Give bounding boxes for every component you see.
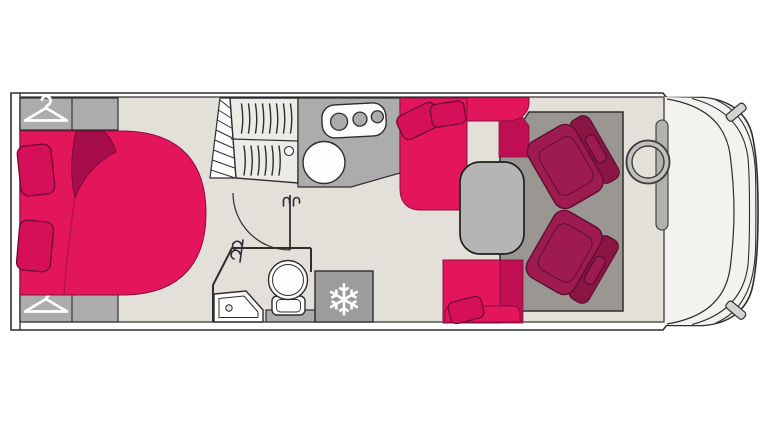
bed (16, 131, 206, 295)
sofa-top-bench (467, 98, 529, 122)
snowflake-icon: ❄ (326, 276, 363, 327)
toilet (269, 261, 308, 316)
wardrobe-rear-top (20, 96, 118, 130)
cab-floor-zone (664, 97, 757, 325)
closet (210, 98, 298, 183)
fridge: ❄ (315, 271, 373, 327)
stove (321, 102, 387, 138)
bench-seat (443, 260, 523, 325)
pillow (16, 220, 54, 273)
kitchen-sink (303, 142, 345, 184)
sofa-cushion (429, 100, 466, 128)
pillow (16, 143, 55, 196)
kitchen (298, 98, 400, 187)
motorhome-floorplan: ❄ (0, 0, 770, 440)
dinette-table (460, 162, 524, 254)
floorplan-canvas: ❄ (0, 0, 770, 440)
